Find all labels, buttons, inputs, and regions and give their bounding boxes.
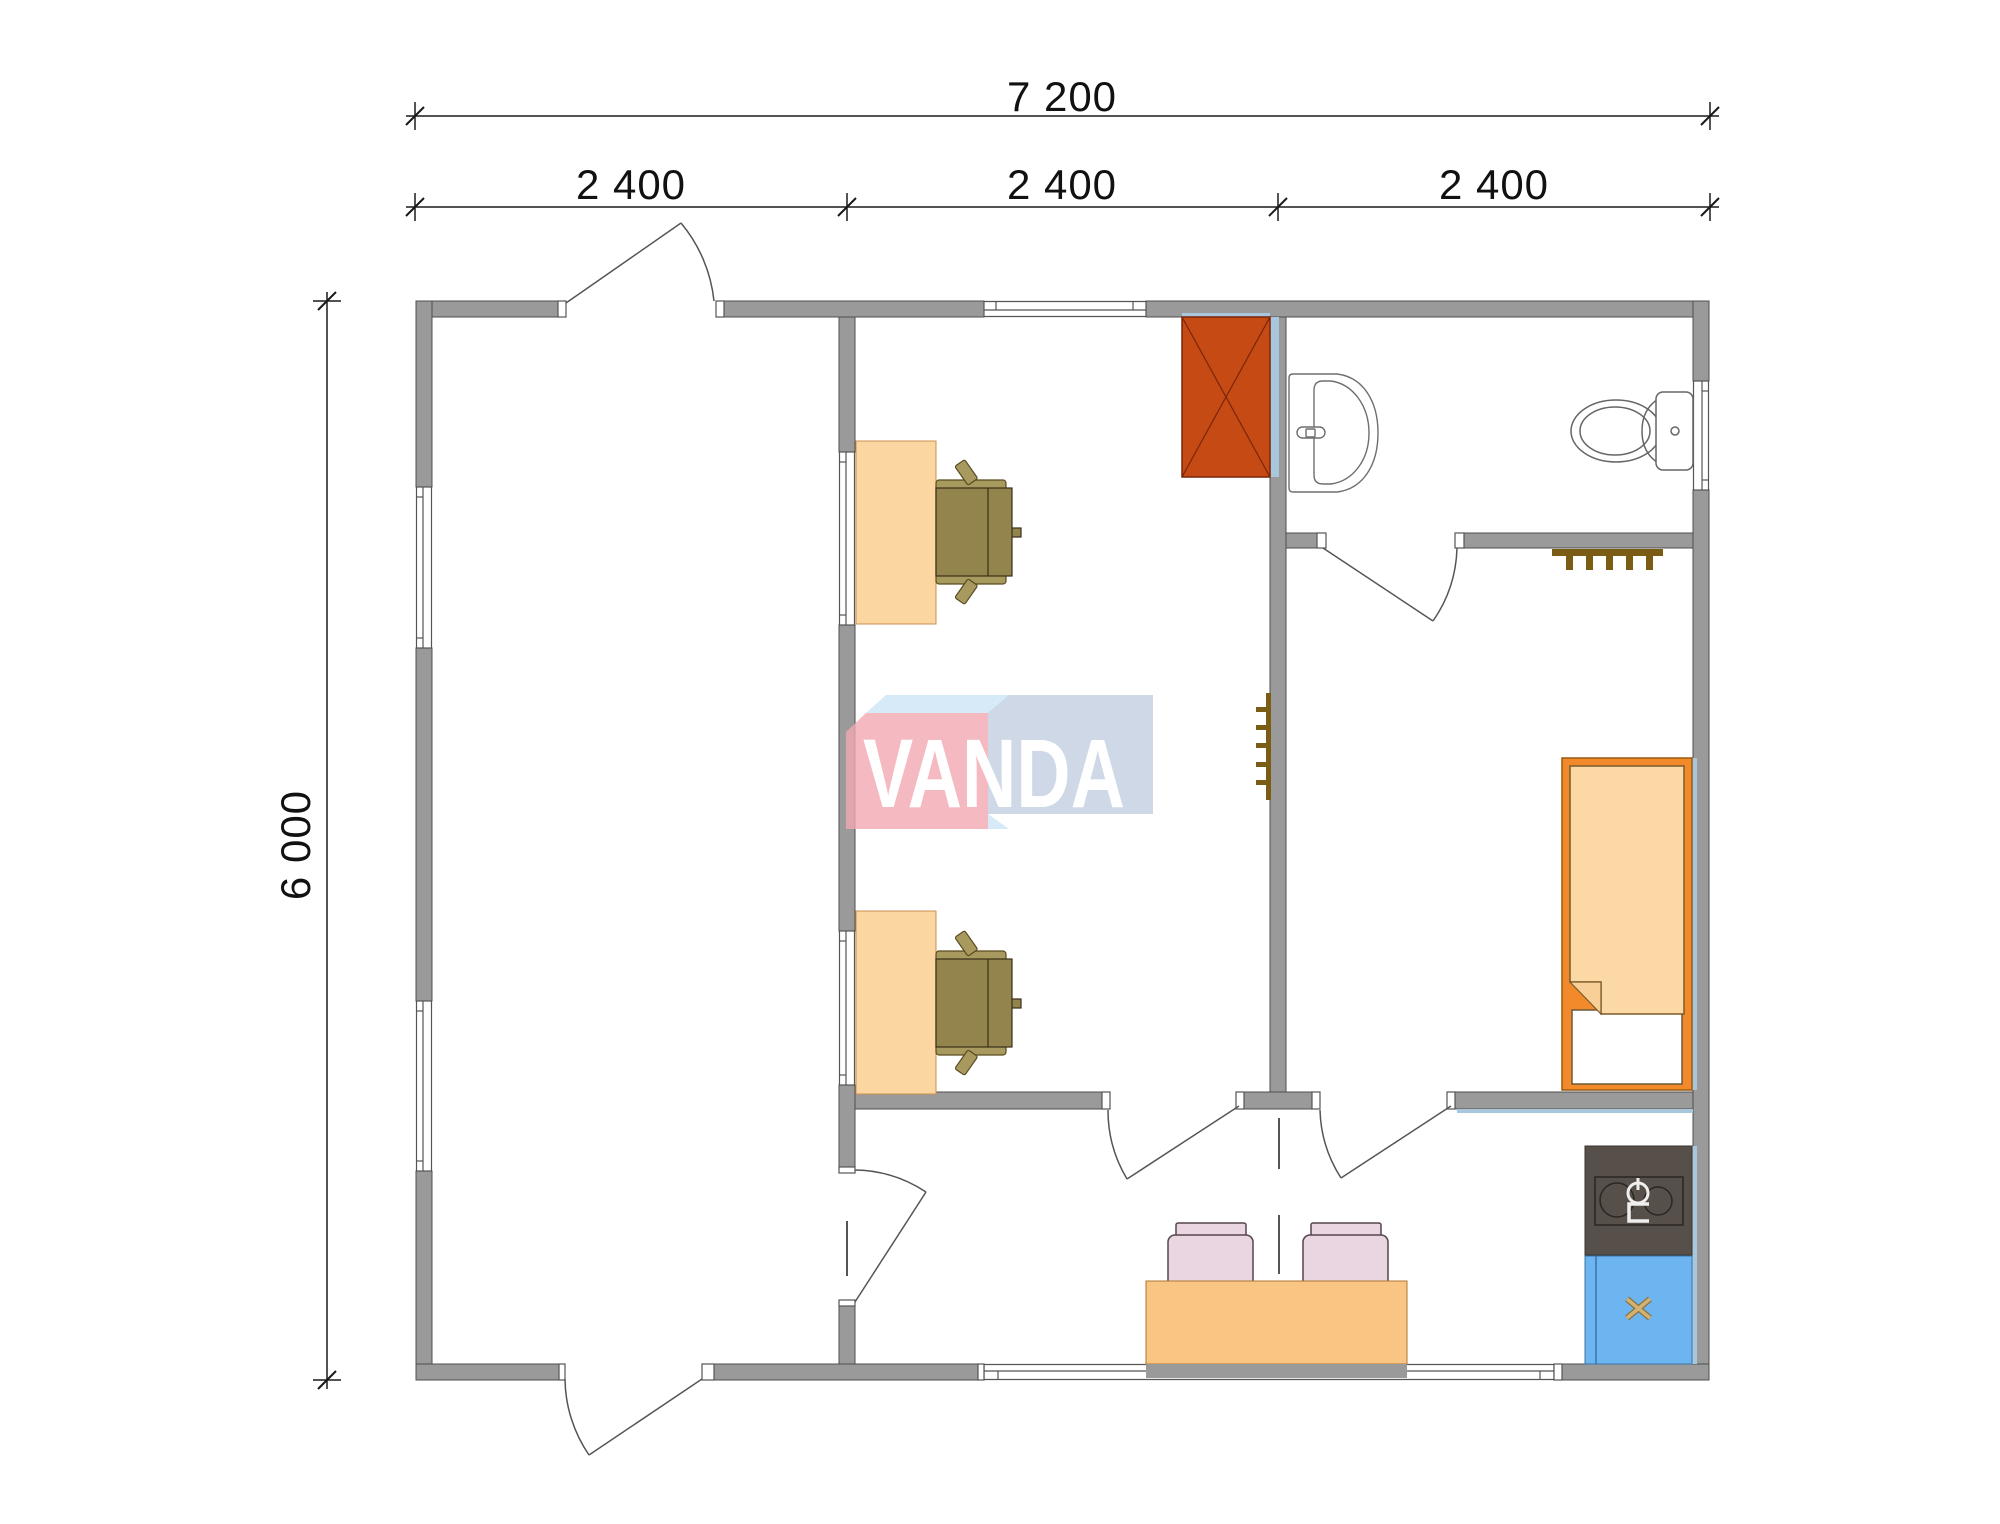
svg-text:2 400: 2 400 [576, 161, 686, 208]
svg-text:2 400: 2 400 [1439, 161, 1549, 208]
svg-text:2 400: 2 400 [1007, 161, 1117, 208]
svg-text:6 000: 6 000 [272, 790, 319, 900]
svg-text:VANDA: VANDA [863, 719, 1125, 828]
svg-text:7 200: 7 200 [1007, 73, 1117, 120]
